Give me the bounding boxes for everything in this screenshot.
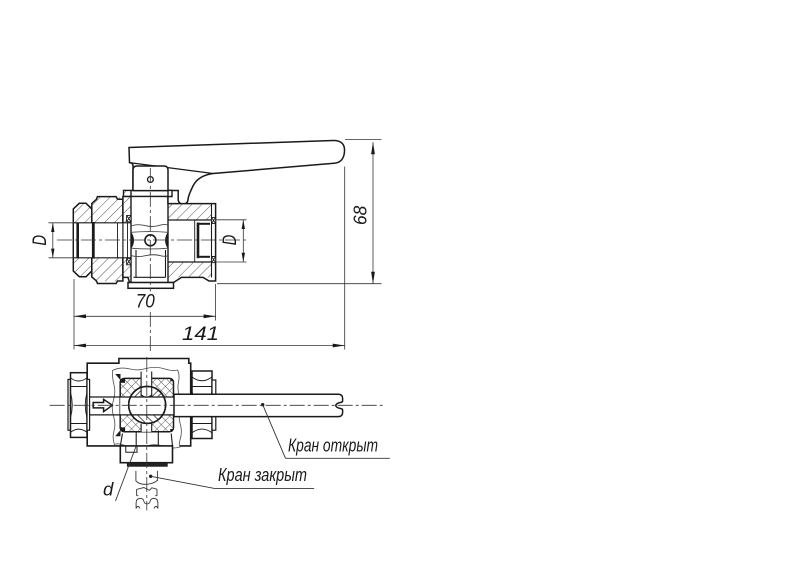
svg-text:d: d — [103, 478, 114, 499]
svg-text:Кран закрыт: Кран закрыт — [218, 464, 307, 485]
svg-text:70: 70 — [136, 292, 155, 313]
svg-text:68: 68 — [349, 205, 370, 225]
svg-text:Кран открыт: Кран открыт — [288, 435, 378, 456]
svg-text:D: D — [30, 235, 51, 246]
svg-text:141: 141 — [182, 323, 219, 345]
